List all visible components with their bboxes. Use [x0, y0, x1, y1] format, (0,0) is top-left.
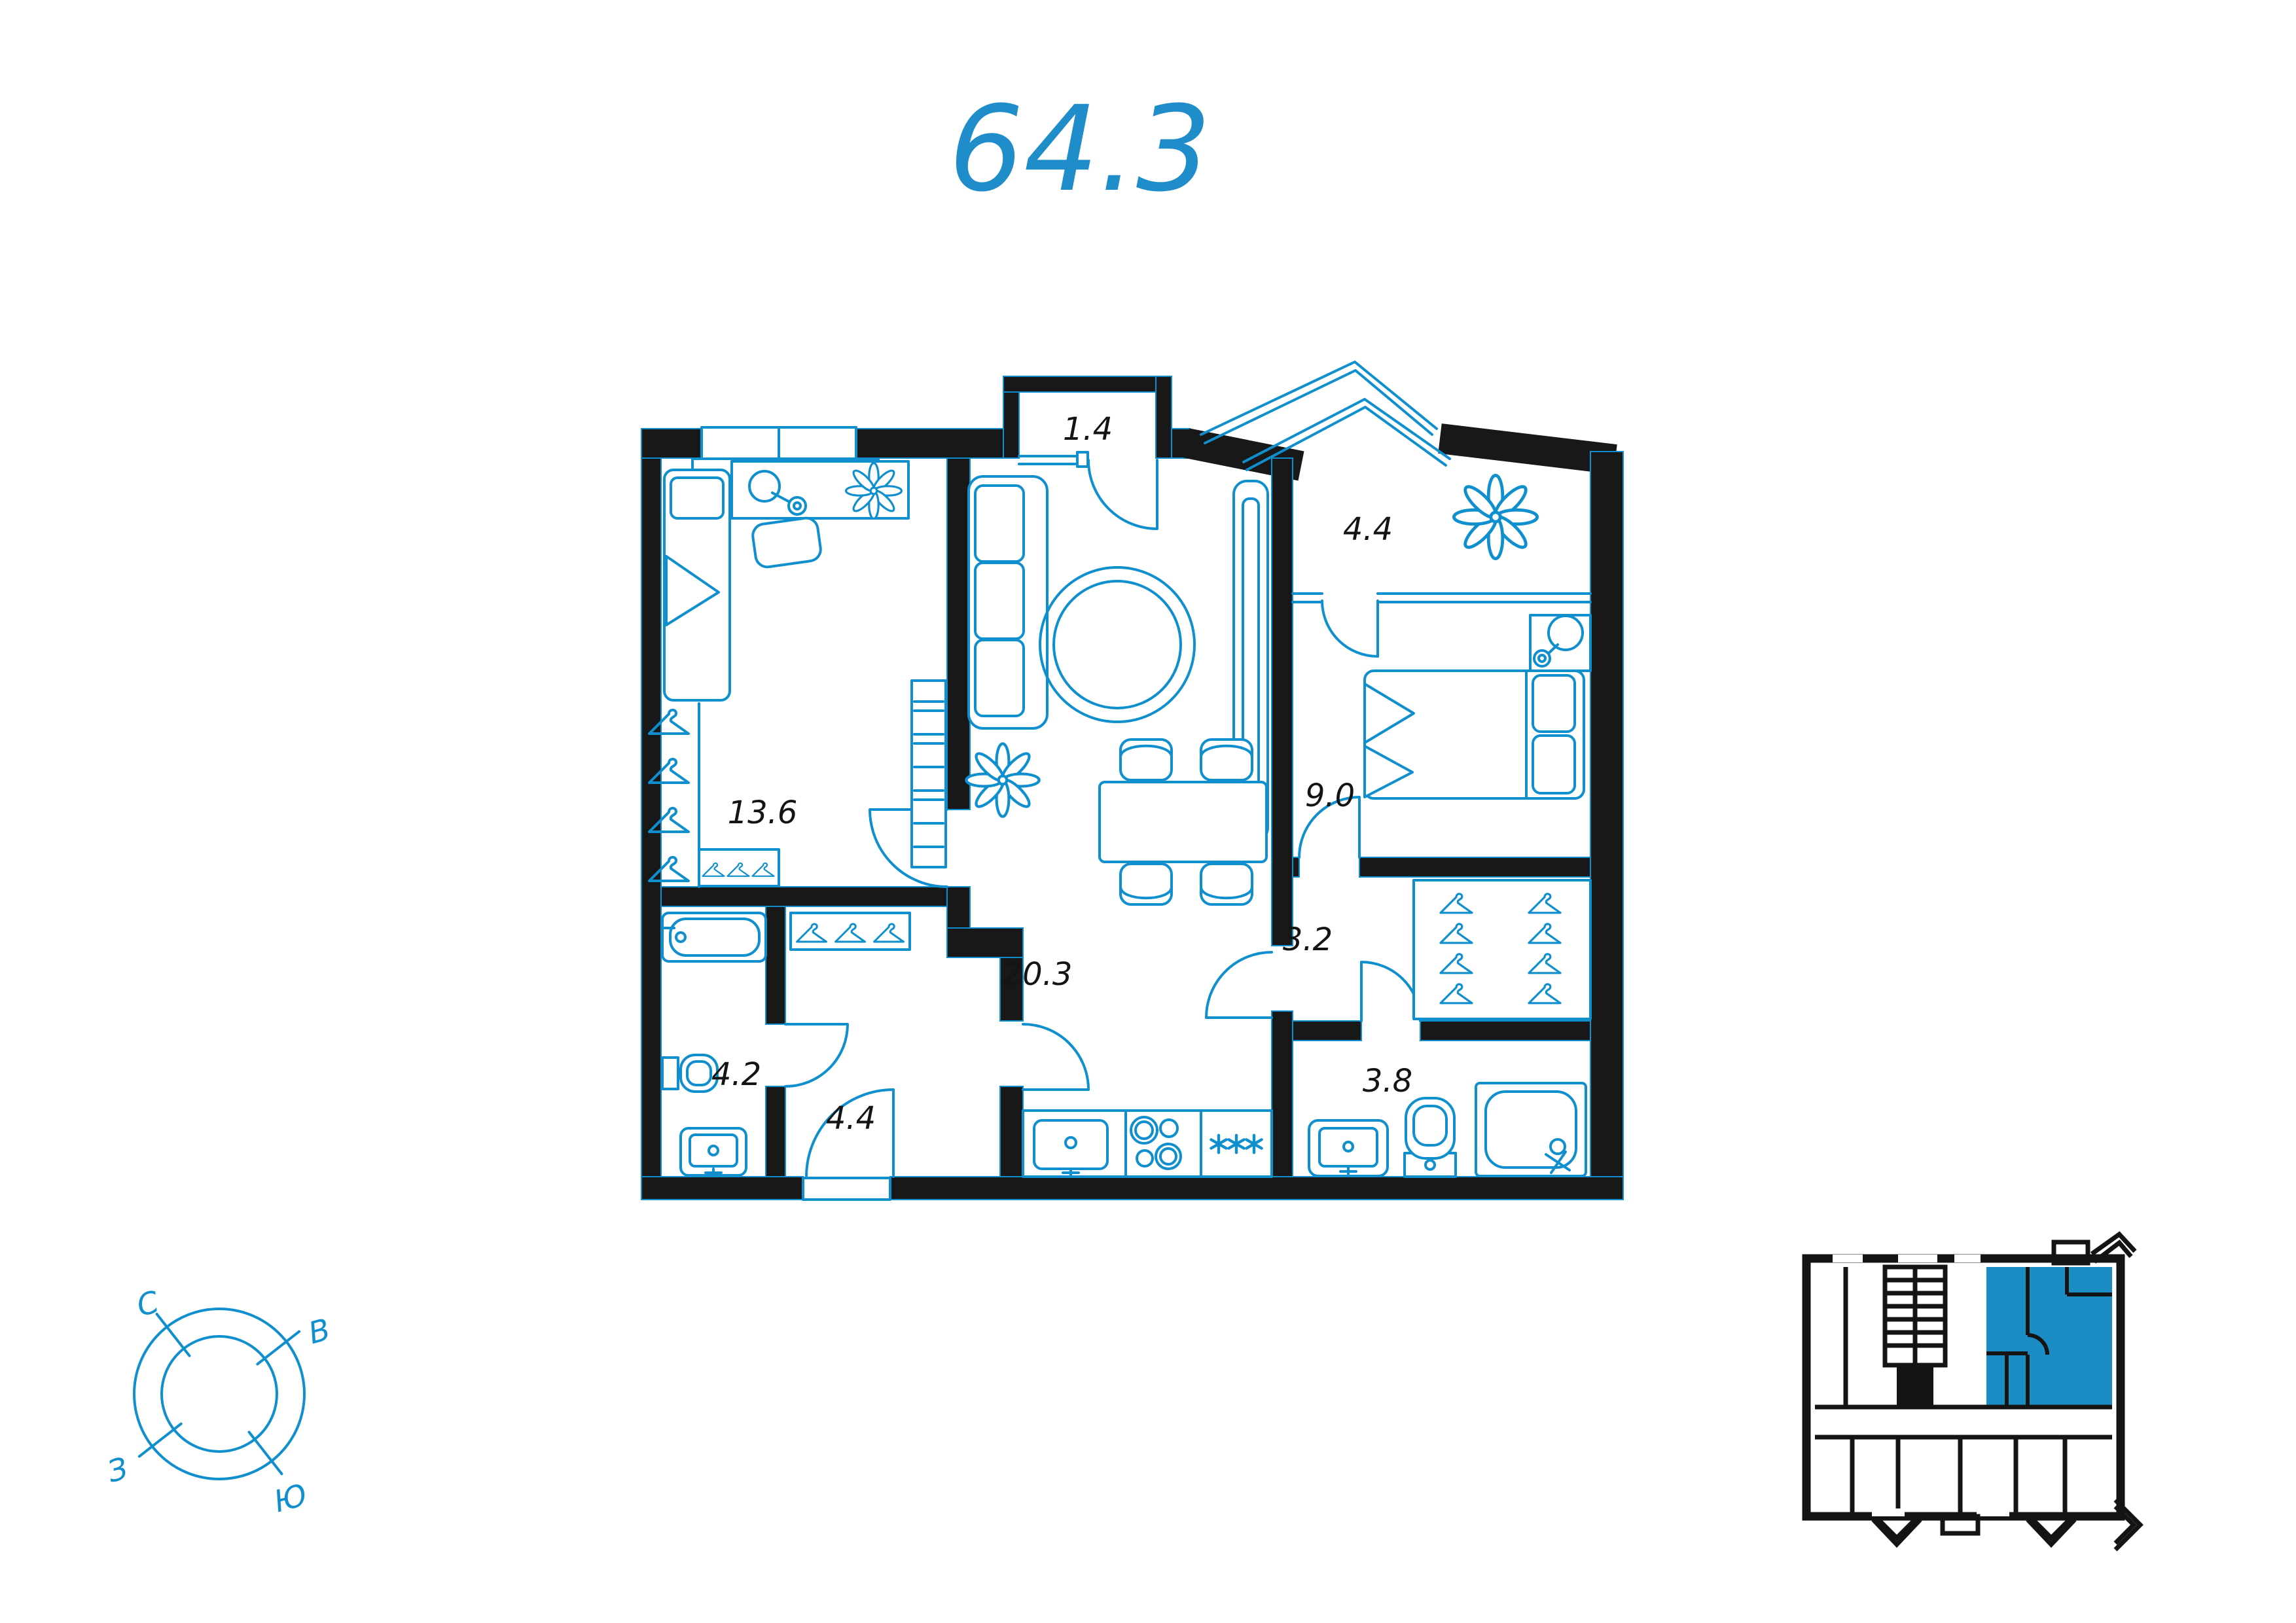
room-area-label-hallway: 4.4: [826, 1100, 876, 1137]
door-arc-bathroom: [785, 1024, 848, 1086]
vestibule-wall-top: [1003, 376, 1172, 392]
room-area-label-wc: 3.8: [1363, 1063, 1412, 1099]
floorplan-image: 64.3: [0, 0, 2296, 1623]
window-vestibule: [1019, 452, 1088, 467]
plant-icon: [966, 743, 1039, 816]
compass-east-label: В: [305, 1311, 334, 1351]
hanger-rack-icon: [699, 849, 779, 886]
chair-icon: [1201, 864, 1252, 904]
key-plan-elevator: [1897, 1365, 1933, 1407]
door-arc-hallway-living: [1023, 1024, 1088, 1090]
bay-wall-right: [1440, 438, 1615, 459]
washbasin-icon: [681, 1128, 746, 1175]
door-arc-vestibule: [1088, 460, 1157, 529]
compass-rose: С В З Ю: [77, 1251, 361, 1536]
toilet-icon: [1405, 1098, 1456, 1177]
desk-lamp-icon: [749, 471, 780, 501]
furniture-living: [966, 476, 1272, 1177]
room-area-label-loggia: 4.4: [1343, 511, 1393, 548]
compass-north-label: С: [133, 1284, 162, 1323]
room-area-label-living: 20.3: [1003, 956, 1073, 993]
dining-set-icon: [1100, 740, 1266, 904]
furniture-bedroom: [649, 461, 946, 887]
key-plan: [1806, 1234, 2140, 1550]
shower-icon: [1476, 1083, 1586, 1176]
desk-chair-icon: [751, 516, 822, 568]
bookshelf-icon: [912, 681, 946, 867]
round-table-icon: [1040, 567, 1194, 722]
fridge-snowflake-icon: [1211, 1135, 1261, 1152]
plant-icon: [846, 463, 902, 519]
chair-icon: [1121, 740, 1172, 780]
plan-title: 64.3: [949, 81, 1211, 218]
room-area-label-bathroom: 4.2: [711, 1056, 761, 1093]
chair-icon: [1121, 864, 1172, 904]
compass-west-label: З: [104, 1450, 132, 1489]
sofa-icon: [969, 476, 1047, 728]
compass-south-label: Ю: [270, 1477, 311, 1520]
hallway-hanger-rack-icon: [791, 913, 910, 950]
chair-icon: [1201, 740, 1252, 780]
furniture-bedroom-2: [1365, 475, 1590, 798]
vestibule-wall-right: [1156, 376, 1172, 458]
plant-icon: [1454, 475, 1537, 558]
dining-table-icon: [1100, 782, 1266, 862]
washbasin-icon: [1309, 1120, 1388, 1176]
double-bed-icon: [1365, 671, 1584, 798]
room-area-label-bedroom: 13.6: [728, 794, 798, 831]
bathtub-icon: [662, 913, 766, 961]
toilet-icon: [662, 1055, 717, 1092]
room-area-label-hall: 3.2: [1283, 921, 1333, 958]
door-arc-loggia: [1322, 601, 1378, 656]
door-arc-wc: [1361, 962, 1420, 1021]
window-loggia-partition: [1293, 594, 1590, 602]
kitchen-counter-icon: [1023, 1111, 1272, 1177]
door-arc-living-hall: [1206, 952, 1272, 1018]
dresser-lamp-icon: [1530, 615, 1590, 671]
bed-icon: [664, 470, 730, 700]
entry-door-opening: [803, 1178, 890, 1200]
room-area-label-bedroom-2: 9.0: [1305, 777, 1355, 814]
wardrobe-hangers-icon: [1414, 880, 1590, 1019]
room-area-label-vestibule: 1.4: [1063, 411, 1113, 448]
